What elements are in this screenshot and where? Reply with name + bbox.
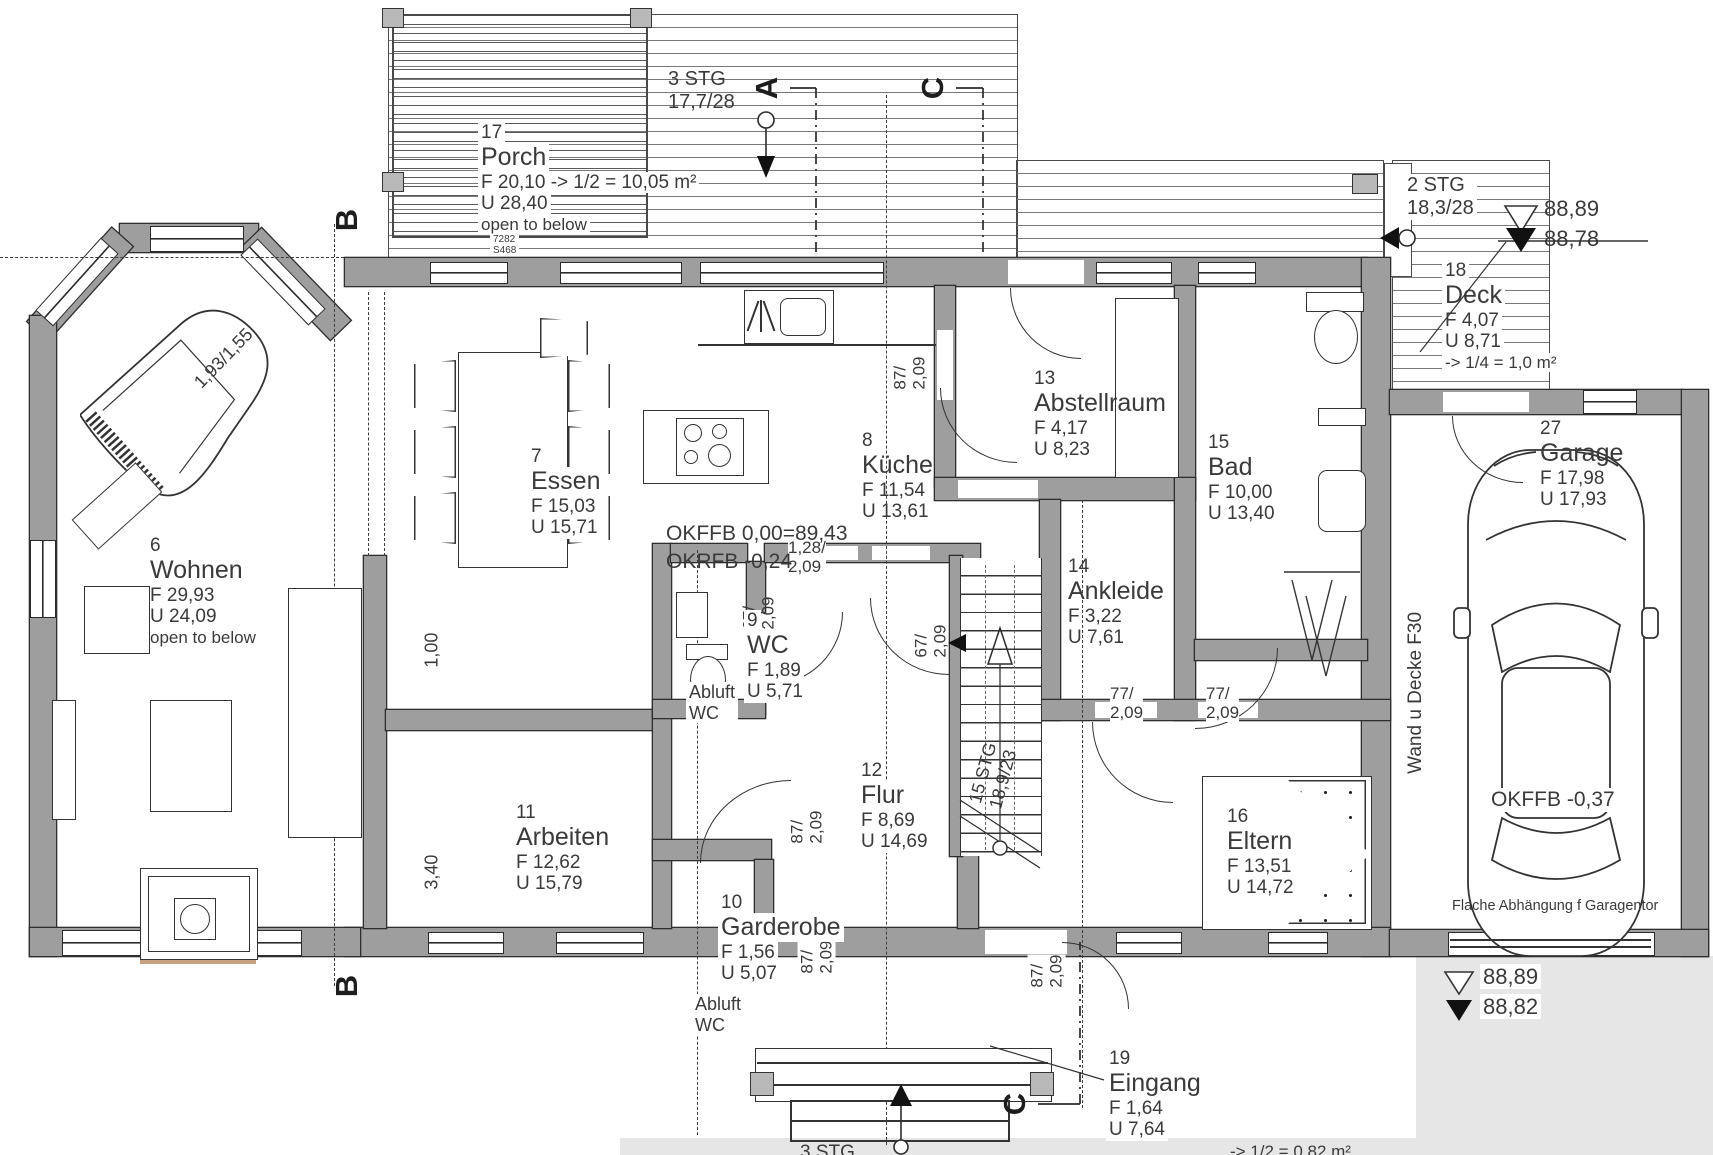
window bbox=[700, 262, 884, 284]
cooktop-burner bbox=[684, 450, 698, 464]
cooktop-burner bbox=[708, 444, 731, 467]
room-label-deck: 18 Deck F 4,07 U 8,71 -> 1/4 = 1,0 m² bbox=[1442, 260, 1560, 372]
door-arc-abstellraum bbox=[1010, 288, 1081, 359]
bad-shelf bbox=[1318, 408, 1366, 426]
room-label-kueche: 8 Küche F 11,54 U 13,61 bbox=[862, 430, 933, 523]
platform-line bbox=[757, 1062, 1048, 1064]
room-label-wohnen: 6 Wohnen F 29,93 U 24,09 open to below bbox=[150, 535, 256, 647]
window bbox=[1198, 262, 1256, 284]
wall-west bbox=[30, 316, 56, 956]
wall-essen-arbeiten bbox=[386, 710, 662, 730]
opening-dashed-line bbox=[384, 292, 385, 556]
garage-door-line bbox=[1450, 946, 1651, 948]
chair bbox=[568, 360, 610, 412]
toilet-bowl-bad bbox=[1314, 310, 1358, 364]
car-top-view bbox=[1452, 440, 1660, 968]
fan-icon bbox=[180, 904, 210, 934]
main-staircase bbox=[960, 558, 1042, 856]
chair bbox=[540, 318, 588, 358]
window-south bbox=[1116, 932, 1182, 954]
level-br-lower: 88,82 bbox=[1480, 994, 1541, 1019]
bay-window bbox=[150, 226, 244, 252]
cooktop-burner bbox=[684, 424, 702, 442]
ref-number: 7282 S468 bbox=[490, 234, 519, 256]
step-side bbox=[790, 1100, 792, 1142]
cooktop-burner bbox=[712, 424, 727, 439]
stair-area-note: -> 1/2 = 0,82 m² bbox=[1230, 1142, 1351, 1155]
sideboard bbox=[52, 700, 76, 820]
okrfb-note: OKRFB -0,24 bbox=[666, 550, 792, 574]
room-label-arbeiten: 11 Arbeiten F 12,62 U 15,79 bbox=[516, 802, 609, 895]
section-marker-a: A bbox=[749, 77, 785, 99]
kitchen-counter-edge bbox=[698, 344, 936, 346]
dim-door-eingang: 87/ 2,09 bbox=[1028, 954, 1066, 987]
entrance-door-opening bbox=[985, 930, 1067, 954]
room-label-porch: 17 Porch F 20,10 -> 1/2 = 10,05 m² U 28,… bbox=[478, 122, 699, 234]
stair-note-bottom: 3 STG bbox=[800, 1142, 855, 1155]
deck-post bbox=[1352, 174, 1378, 194]
wall-garage-east bbox=[1682, 390, 1708, 956]
entrance-post bbox=[1030, 1072, 1054, 1096]
room-label-bad: 15 Bad F 10,00 U 13,40 bbox=[1208, 432, 1275, 525]
wc-basin bbox=[676, 592, 708, 638]
stairs-dashed-line bbox=[985, 565, 986, 850]
window bbox=[1096, 262, 1172, 284]
door-arc-flur bbox=[700, 780, 791, 863]
bad-washbasin bbox=[1318, 470, 1366, 532]
room-label-eingang: 19 Eingang F 1,64 U 7,64 bbox=[1106, 1048, 1204, 1141]
driveway bbox=[1416, 956, 1713, 1155]
level-tr-upper: 88,89 bbox=[1544, 196, 1599, 221]
dim-door-flur: 87/ 2,09 bbox=[788, 810, 826, 843]
dim-door-stairs: 67/ 2,09 bbox=[912, 624, 950, 657]
opening-dashed-line bbox=[368, 292, 369, 556]
chair bbox=[414, 360, 456, 412]
okffb-note: OKFFB 0,00=89,43 bbox=[666, 522, 848, 546]
garage-side-door-opening bbox=[1443, 392, 1529, 412]
abstellraum-door-opening bbox=[1008, 260, 1084, 284]
stairs-dashed-line bbox=[1014, 565, 1015, 850]
garage-door-line bbox=[1450, 939, 1651, 941]
window bbox=[560, 262, 682, 284]
dim-door-ankleide: 77/ 2,09 bbox=[1110, 684, 1143, 722]
closet-hanger-symbol bbox=[1284, 572, 1360, 676]
wall-stairs-east bbox=[1040, 500, 1060, 720]
armchair bbox=[84, 586, 150, 654]
porch-decking-east bbox=[1016, 160, 1384, 264]
room-label-wc: 9 WC F 1,89 U 5,71 bbox=[744, 610, 806, 703]
room-label-ankleide: 14 Ankleide F 3,22 U 7,61 bbox=[1068, 556, 1164, 649]
stair-note-right: 2 STG 18,3/28 bbox=[1404, 174, 1477, 220]
room-label-flur: 12 Flur F 8,69 U 14,69 bbox=[858, 760, 931, 853]
entrance-post bbox=[750, 1072, 774, 1096]
section-marker-b-bottom: B bbox=[329, 975, 365, 997]
chair bbox=[414, 426, 456, 478]
floor-plan: 6 Wohnen F 29,93 U 24,09 open to below 7… bbox=[0, 0, 1713, 1155]
level-br-upper: 88,89 bbox=[1480, 964, 1541, 989]
coffee-table bbox=[150, 700, 232, 812]
dim-door-abstellraum: 87/ 2,09 bbox=[891, 356, 929, 389]
wall-bad-west bbox=[1175, 478, 1195, 720]
abluft-wc-note-2: Abluft WC bbox=[692, 994, 744, 1035]
door-arc-eltern bbox=[1092, 722, 1173, 803]
toilet-tank-bad bbox=[1306, 292, 1364, 312]
wall-garage-north bbox=[1390, 390, 1682, 414]
pergola-post bbox=[630, 8, 652, 28]
window-west bbox=[30, 540, 56, 618]
room-label-garage: 27 Garage F 17,98 U 17,93 bbox=[1540, 418, 1623, 511]
wall-wohnen-divider bbox=[364, 556, 386, 928]
stairs-door-opening bbox=[872, 546, 930, 560]
section-marker-b-top: B bbox=[329, 209, 365, 231]
boundary-dashed-line bbox=[0, 257, 344, 258]
pergola-post bbox=[382, 172, 404, 192]
room-label-abstellraum: 13 Abstellraum F 4,17 U 8,23 bbox=[1034, 368, 1166, 461]
pergola-post bbox=[382, 8, 404, 28]
dim-door-bad: 77/ 2,09 bbox=[1206, 684, 1239, 722]
sofa bbox=[288, 588, 362, 838]
wall-wc-west bbox=[653, 544, 671, 928]
room-label-garderobe: 10 Garderobe F 1,56 U 5,07 bbox=[718, 892, 844, 985]
dim-wall-340: 3,40 bbox=[421, 855, 441, 890]
stair-note-top: 3 STG 17,7/28 bbox=[668, 68, 735, 114]
level-tr-lower: 88,78 bbox=[1544, 226, 1599, 251]
garage-window bbox=[1583, 390, 1637, 414]
step-line bbox=[790, 1120, 1010, 1122]
sink-drainer-line bbox=[760, 300, 762, 332]
garagentor-note: Flache Abhängung f Garagentor bbox=[1452, 898, 1658, 915]
room-label-eltern: 16 Eltern F 13,51 U 14,72 bbox=[1224, 806, 1297, 899]
window-south bbox=[556, 932, 644, 954]
garage-okffb-note: OKFFB -0,37 bbox=[1488, 788, 1618, 812]
section-marker-c-bottom: C bbox=[997, 1093, 1033, 1115]
window-south bbox=[62, 930, 146, 956]
section-marker-c-top: C bbox=[915, 77, 951, 99]
kueche-door-opening bbox=[958, 480, 1038, 498]
step-line bbox=[790, 1100, 1010, 1102]
window-south bbox=[1268, 932, 1328, 954]
abluft-wc-note: Abluft WC bbox=[686, 682, 738, 723]
chair bbox=[414, 492, 456, 544]
room-label-essen: 7 Essen F 15,03 U 15,71 bbox=[528, 446, 603, 539]
dim-wall-100: 1,00 bbox=[421, 633, 441, 668]
wand-decke-note: Wand u Decke F30 bbox=[1405, 543, 1427, 843]
window bbox=[430, 262, 508, 284]
platform-line bbox=[757, 1084, 1048, 1086]
kitchen-sink-basin bbox=[780, 298, 826, 336]
window-south bbox=[428, 932, 504, 954]
